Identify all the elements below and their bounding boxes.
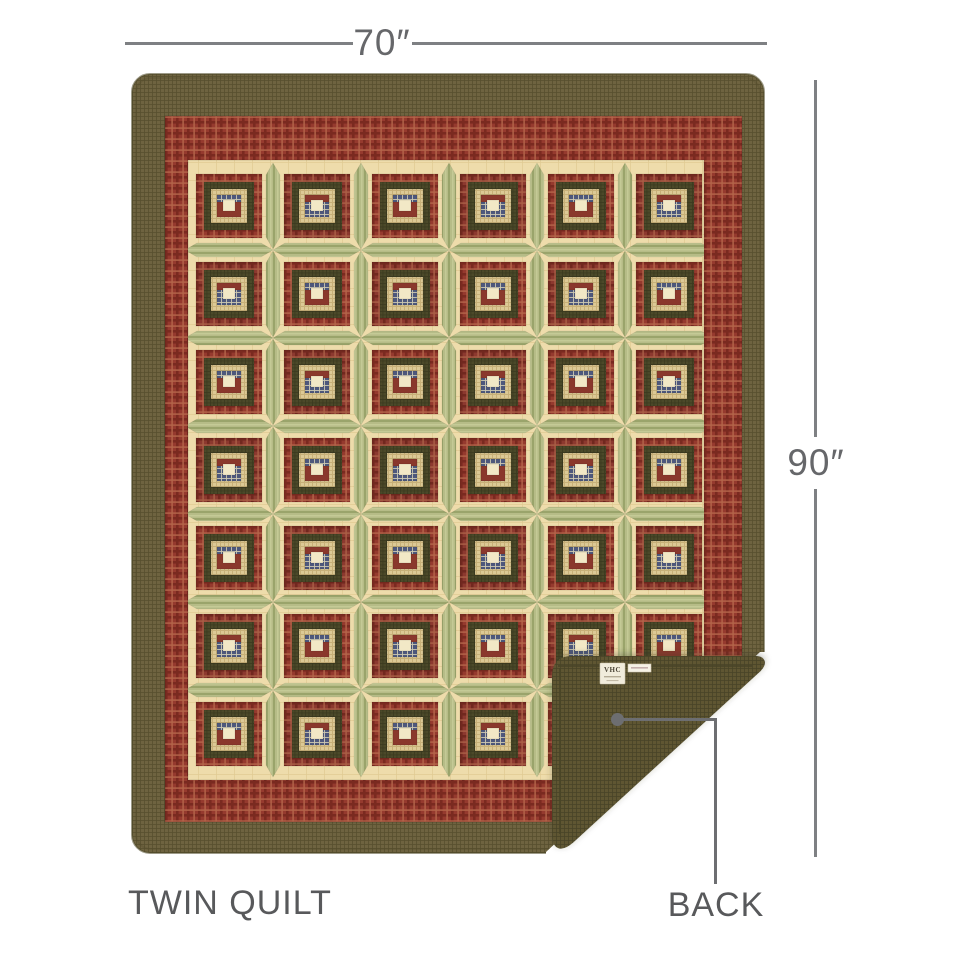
log-cabin-block bbox=[284, 526, 350, 590]
log-cabin-block bbox=[460, 262, 526, 326]
log-cabin-block bbox=[284, 702, 350, 766]
log-cabin-block bbox=[196, 614, 262, 678]
log-cabin-block bbox=[636, 438, 702, 502]
log-cabin-block bbox=[548, 174, 614, 238]
log-cabin-block bbox=[196, 174, 262, 238]
product-dimension-diagram: VHC 70″ 90″ BACK TWIN QUILT bbox=[0, 0, 960, 960]
log-cabin-block bbox=[372, 614, 438, 678]
log-cabin-block bbox=[460, 174, 526, 238]
log-cabin-block bbox=[548, 526, 614, 590]
log-cabin-block bbox=[196, 702, 262, 766]
log-cabin-block bbox=[636, 262, 702, 326]
log-cabin-block bbox=[372, 262, 438, 326]
back-callout-line-vertical bbox=[714, 718, 717, 884]
log-cabin-block bbox=[636, 526, 702, 590]
log-cabin-block bbox=[284, 614, 350, 678]
back-label: BACK bbox=[654, 888, 778, 922]
log-cabin-block bbox=[460, 614, 526, 678]
height-dimension-line-top bbox=[814, 80, 817, 437]
log-cabin-block bbox=[196, 526, 262, 590]
log-cabin-block bbox=[284, 262, 350, 326]
log-cabin-block bbox=[636, 350, 702, 414]
log-cabin-block bbox=[372, 702, 438, 766]
log-cabin-block bbox=[548, 350, 614, 414]
log-cabin-block bbox=[196, 438, 262, 502]
log-cabin-block bbox=[460, 526, 526, 590]
quilt-tag-brand: VHC bbox=[604, 666, 621, 674]
log-cabin-block bbox=[636, 174, 702, 238]
log-cabin-block bbox=[548, 262, 614, 326]
log-cabin-block bbox=[372, 350, 438, 414]
log-cabin-block bbox=[460, 702, 526, 766]
height-dimension-label: 90″ bbox=[778, 444, 854, 481]
product-size-label: TWIN QUILT bbox=[128, 886, 332, 920]
log-cabin-block bbox=[284, 174, 350, 238]
log-cabin-block bbox=[284, 438, 350, 502]
log-cabin-block bbox=[372, 174, 438, 238]
width-dimension-label: 70″ bbox=[346, 24, 418, 61]
log-cabin-block bbox=[196, 262, 262, 326]
log-cabin-block bbox=[460, 438, 526, 502]
log-cabin-block bbox=[372, 438, 438, 502]
height-dimension-line-bottom bbox=[814, 489, 817, 857]
log-cabin-block bbox=[196, 350, 262, 414]
log-cabin-block bbox=[284, 350, 350, 414]
width-dimension-line-right bbox=[412, 42, 767, 45]
log-cabin-block bbox=[372, 526, 438, 590]
log-cabin-block bbox=[548, 438, 614, 502]
log-cabin-block bbox=[460, 350, 526, 414]
width-dimension-line-left bbox=[125, 42, 353, 45]
back-callout-line-horizontal bbox=[618, 718, 717, 721]
